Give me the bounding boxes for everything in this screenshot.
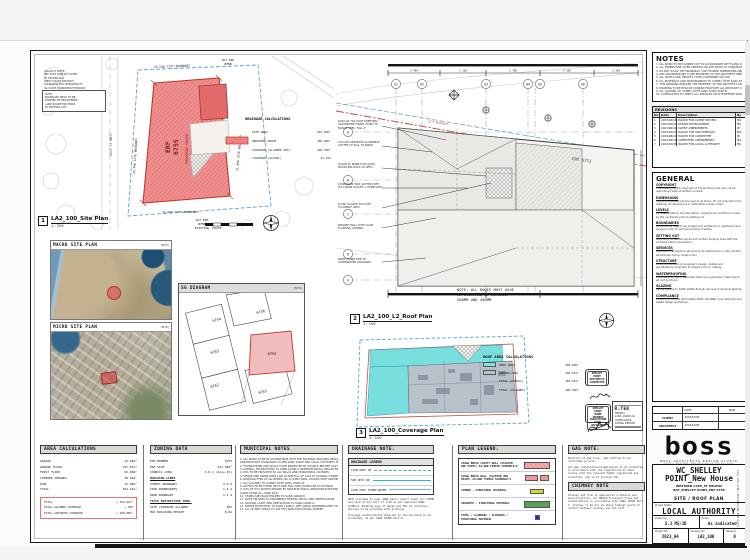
project-title: POINT_New House — [654, 475, 744, 483]
svg-text:A: A — [347, 130, 349, 134]
brick-cavity-swatch — [524, 462, 550, 469]
view-scale: 1 : 200 — [51, 224, 108, 228]
pipe-line-sample — [389, 489, 431, 490]
general-paras: COPYRIGHTThis drawing is the copyright o… — [656, 183, 742, 304]
text-line: 14. ALL OF WET AREAS TO 150 FFLS NON-STR… — [240, 508, 338, 511]
view-number: 3 — [356, 428, 366, 438]
erf-label: ERF — [164, 141, 172, 153]
view-number: 1 — [38, 216, 48, 226]
drainage-note: DRAINAGE NOTE: DRAINAGE LEGEND 110Ø UPVC… — [348, 445, 434, 521]
roof-area-swatch — [483, 362, 496, 367]
view-scale: 1 : 100 — [369, 436, 444, 440]
text-line: GUTTER TO FALL TO RWDP — [338, 144, 382, 147]
drainage-legend: DRAINAGE LEGEND 110Ø UPVC SP 50Ø UPVC WP… — [348, 458, 434, 495]
paragraph: COMPLIANCEAll work to comply with SANS 1… — [656, 294, 742, 304]
macro-aerial-photo — [51, 250, 171, 319]
site-marker — [107, 286, 121, 300]
area-calc-totals: TOTAL+ 394.61m²TOTAL ALLOWED COVERAGE+ 5… — [40, 497, 137, 519]
micro-aerial-photo — [51, 332, 171, 419]
adjacent-erf-top: ADJ ERF6756 — [222, 58, 235, 66]
table-divider — [452, 445, 453, 540]
brick-swatch — [540, 475, 549, 481]
zoning-data-table: ZONING DATA ERF NUMBER6755ERF SIZE641.00… — [150, 445, 232, 516]
general-title: GENERAL — [656, 175, 742, 183]
gas-para: Position of gas line — gas bottles to be… — [568, 457, 645, 464]
erf-sub-label: PROPOSED HOUSE — [185, 134, 189, 164]
signature — [586, 419, 612, 435]
roof-area-calculations: ROOF AREA CALCULATIONS ROOF AREA258.00m²… — [483, 354, 579, 396]
drainage-header: DRAINAGE NOTE: — [348, 445, 434, 454]
gas-para: All gas installations/appliances to be i… — [568, 466, 645, 479]
micro-title: MICRO SITE PLAN — [53, 325, 97, 330]
table-divider — [143, 445, 144, 540]
paragraph: STRUCTUREAll structural work to engineer… — [656, 259, 742, 269]
svg-text:5 780: 5 780 — [509, 69, 517, 73]
table-row: TOTAL ACHIEVED COVERAGE+ 258.00m² — [44, 511, 133, 516]
sg-diagram-box: SG DIAGRAM(NTS) 6754 6756 6763 6762 6761… — [178, 283, 305, 416]
roof-overhang-note: NOTE: ALL ROOFS MUST HAVEAN OVERHANG OF … — [457, 287, 514, 302]
text-line: TO SETTING OUT. — [45, 106, 104, 109]
svg-text:05: 05 — [538, 82, 542, 86]
view-label-coverage-plan: 3 LA2_100_Coverage Plan 1 : 100 — [356, 428, 444, 440]
erf-number: 6755 — [172, 139, 180, 155]
text-line: MOUNTING RAILS TO SPEC. — [338, 166, 382, 169]
notes-box: NOTES 1. ALL WORK TO BE CARRIED OUT IN A… — [652, 52, 746, 102]
micro-nts: (NTS) — [161, 325, 169, 329]
drawn-scale-row: Drawn by:S.J MS/JB Scale:As indicated — [652, 516, 746, 529]
patio-cutout — [190, 120, 230, 155]
area-calc-header: AREA CALCULATIONS — [40, 445, 137, 454]
project-address: BAY_SHELLEY POINT_ERF 6755 — [673, 488, 725, 492]
concrete-swatch — [524, 501, 550, 508]
drawing-number: LA2_100 — [691, 534, 722, 539]
svg-text:PROPOSED HOUSE: PROPOSED HOUSE — [252, 139, 277, 143]
text-line: RATING REPORT — [615, 422, 641, 425]
paragraph: BOUNDARIESAll boundary pegs to be locate… — [656, 221, 742, 231]
drainage-para: Drainage installations external to the b… — [348, 514, 434, 521]
sg-diagram-drawing: 6754 6756 6763 6762 6761 6755 — [179, 293, 304, 415]
view-number: 2 — [350, 314, 360, 324]
steel-swatch — [535, 515, 540, 520]
municipal-header: MUNICIPAL NOTES — [240, 445, 338, 454]
north-arrow-icon — [598, 312, 615, 329]
boundary-label-top: 16.54m CITY BOUNDARY — [154, 64, 190, 69]
scrollbar-thumb[interactable] — [745, 85, 750, 115]
top-dimensions: 2 4503 120 5 7804 100 2 300 — [410, 69, 620, 73]
micro-site-plan-box: MICRO SITE PLAN(NTS) — [50, 322, 172, 420]
road-label: GOLF ST WEST — [109, 133, 113, 156]
table-row: TOTAL394.61m² — [40, 487, 137, 493]
drawing-sheet-viewer: GOLF ST WEST ERF 6755 PROPOSED HOUSE 16.… — [0, 0, 750, 560]
text-line: TO MANUF. SPEC. — [338, 206, 382, 209]
table-row: 72023/10/05ISSUED FOR LOCAL AUTHORITYMS — [653, 142, 745, 146]
boundary-label-left: 25.49m SITE BOUNDARY — [132, 138, 139, 175]
svg-text:320.50m²: 320.50m² — [317, 148, 331, 152]
notes-lines: 1. ALL WORK TO BE CARRIED OUT IN ACCORDA… — [656, 63, 742, 97]
macro-site-plan-box: MACRO SITE PLAN(NTS) — [50, 240, 172, 320]
sheet-name: SITE / ROOF PLAN — [654, 496, 744, 501]
view-name: LA2_100_Coverage Plan — [369, 428, 444, 436]
roof-callout: CONCEALED BOX GUTTER WITHFULL-BORE OUTLE… — [338, 183, 382, 190]
view-label-roof-plan: 2 LA2_100_L2_Roof Plan 1 : 100 — [350, 314, 432, 326]
table-row: CLIENT2023/10/05 — [653, 414, 745, 422]
view-name: LA2_100_Site Plan — [51, 216, 108, 224]
chimney-para: Chimney and flue to specialist's details… — [568, 494, 645, 511]
gas-chimney-notes: GAS NOTE: Position of gas line — gas bot… — [568, 445, 645, 510]
sg-title: SG DIAGRAM — [181, 286, 210, 291]
view-scale: 1 : 100 — [363, 322, 432, 326]
text-line: 10. CONTRACTOR TO VERIFY ALL SERVICES ON… — [656, 93, 742, 96]
zoning-header: ZONING DATA — [150, 445, 232, 454]
signoff-table: DATESIGNCLIENT2023/10/05ARCHITECT2023/10… — [652, 406, 746, 430]
project-box: WC_SHELLEY POINT_New House WESTERN CAPE_… — [652, 464, 746, 503]
roof-area-title: ROOF AREA CALCULATIONS — [483, 354, 579, 359]
site-boxed-note: NOTE:BOUNDARY PEGS TO BEVERIFIED BY REGI… — [42, 90, 106, 112]
table-divider — [562, 445, 563, 540]
general-box: GENERAL COPYRIGHTThis drawing is the cop… — [652, 172, 746, 402]
svg-text:01: 01 — [394, 82, 398, 86]
area-calculations-table: AREA CALCULATIONS GARAGE44.66m²GROUND FL… — [40, 445, 137, 519]
sg-nts: (NTS) — [294, 286, 302, 290]
north-arrow-icon — [262, 214, 280, 232]
drainage-para: UPVC drainage to bear SABS mark; invert … — [348, 498, 434, 511]
svg-text:3 120: 3 120 — [459, 69, 467, 73]
revisions-box: REVISIONS No.Date DescriptionBy 12023/04… — [652, 106, 746, 168]
svg-text:41.07%: 41.07% — [321, 156, 332, 160]
macro-nts: (NTS) — [161, 243, 169, 247]
svg-text:395.00m²: 395.00m² — [317, 139, 331, 143]
roof-area-left — [367, 366, 409, 416]
pipe-line-sample — [374, 470, 431, 471]
roof-callout: SOLAR PV PANELS ON ALUM.MOUNTING RAILS T… — [338, 163, 382, 170]
paragraph: LEVELSAll levels relate to the site datu… — [656, 208, 742, 218]
chimney-header: CHIMNEY NOTE — [568, 482, 645, 491]
drawn-by: S.J MS/JB — [655, 521, 697, 526]
area-calc-rows: GARAGE44.66m²GROUND FLOOR197.87m²FIRST F… — [40, 459, 137, 493]
energy-rating-card: R:TEK ENERGYSANS 10400-XACOMPLIANCERATIN… — [612, 401, 643, 431]
text-line: STORMWATER SOAKAWAY — [338, 261, 382, 264]
paragraph: GLAZINGSafety glazing to SANS 10400-N at… — [656, 284, 742, 291]
paragraph: SERVICESPositions of all existing servic… — [656, 246, 742, 256]
title-block: NOTES 1. ALL WORK TO BE CARRIED OUT IN A… — [652, 44, 746, 544]
svg-text:03: 03 — [484, 82, 488, 86]
svg-text:4 100: 4 100 — [563, 69, 571, 73]
brand-block: boss BOSS ARCHITECTS DESIGN STUDIO STUDI… — [652, 436, 746, 465]
ground-area-swatch — [483, 370, 496, 375]
paragraph: DIMENSIONSFigured dimensions to be used … — [656, 196, 742, 206]
macro-title: MACRO SITE PLAN — [53, 243, 97, 248]
table-divider — [235, 445, 236, 540]
site-marker — [100, 371, 118, 385]
top-dim-bar — [388, 64, 638, 66]
text-line: FLASHING CAPPING — [338, 227, 382, 230]
scrollbar-track[interactable] — [745, 42, 750, 546]
roof-callout: KLIP-LOK 700 ROOF SHEETING,COLORBOND FIN… — [338, 120, 382, 130]
text-line: MANUF. SPEC. FALL 2° — [338, 127, 382, 130]
svg-text:04: 04 — [526, 82, 530, 86]
status-value: LOCAL AUTHORITY — [655, 507, 743, 516]
municipal-lines: 1. ALL WORK TO BE IN ACCORDANCE WITH THE… — [240, 458, 338, 512]
table-divider — [342, 445, 343, 540]
brick-swatch — [525, 475, 538, 481]
manhole-symbols — [483, 107, 595, 127]
text-line: FULL-BORE OUTLET + OVERFLOW — [338, 186, 382, 189]
committee-stamp: SHELLEY POINTAESTHETICSCOMMITTEE — [585, 369, 609, 386]
text-line: COMMITTEE — [589, 382, 605, 385]
svg-text:02: 02 — [420, 82, 424, 86]
svg-text:E: E — [347, 278, 349, 282]
gas-header: GAS NOTE: — [568, 445, 645, 454]
table-row: DATESIGN — [653, 407, 745, 414]
roof-callout: PARAPET WALL WITH ALUM.FLASHING CAPPING — [338, 224, 382, 231]
drainage-legend-header: DRAINAGE LEGEND — [349, 459, 433, 466]
plan-legend-header: PLAN LEGEND: — [458, 445, 556, 454]
table-row: MAX BUILDING HEIGHT8.0m — [150, 510, 232, 516]
svg-text:SITE AREA: SITE AREA — [252, 130, 268, 134]
svg-text:641.00m²: 641.00m² — [317, 130, 331, 134]
page-bottom-edge — [95, 544, 747, 548]
view-label-site-plan: 1 LA2_100_Site Plan 1 : 200 — [38, 216, 108, 228]
paragraph: WATERPROOFINGAll waterproofing to specia… — [656, 272, 742, 282]
zoning-rows: ERF NUMBER6755ERF SIZE641.00m²COUNCIL CO… — [150, 459, 232, 516]
svg-text:2 450: 2 450 — [410, 69, 418, 73]
svg-text:6755: 6755 — [268, 352, 277, 356]
roof-plan-drawing: 2 4503 120 5 7804 100 2 300 0102 0304 05… — [336, 48, 646, 310]
pipe-line-sample — [373, 480, 431, 481]
svg-text:DRAINAGE CALCULATIONS: DRAINAGE CALCULATIONS — [245, 117, 290, 121]
paragraph: COPYRIGHTThis drawing is the copyright o… — [656, 183, 742, 193]
svg-text:B: B — [347, 178, 349, 182]
table-row: ARCHITECT2023/10/05 — [653, 422, 745, 429]
timber-swatch — [530, 489, 544, 494]
svg-text:2 300: 2 300 — [612, 69, 620, 73]
municipal-notes: MUNICIPAL NOTES 1. ALL WORK TO BE IN ACC… — [240, 445, 338, 512]
svg-text:06: 06 — [581, 82, 585, 86]
svg-text:6756: 6756 — [224, 62, 231, 66]
svg-text:D: D — [347, 252, 349, 256]
roof-callout: FLUSH GLAZED SKYLIGHTTO MANUF. SPEC. — [338, 203, 382, 210]
boundary-text: SITE BOUNDARY — [428, 119, 449, 126]
site-locality-note: LOCALITY NOTE:ERF 6755 SHELLEY POINTST H… — [44, 70, 102, 90]
benchmark-symbol — [449, 90, 459, 100]
svg-text:COVERAGE (ACTUAL): COVERAGE (ACTUAL) — [252, 156, 282, 160]
roof-callout: RWDP DOWN PIPE TOSTORMWATER SOAKAWAY — [338, 258, 382, 265]
garage-block — [199, 84, 228, 120]
skylight — [486, 168, 512, 198]
notes-title: NOTES — [656, 55, 742, 63]
roof-body — [398, 128, 634, 286]
roof-callout: 125x100 SEAMLESS ALUMINIUMGUTTER TO FALL… — [338, 141, 382, 148]
drainage-calculations-legend: DRAINAGE CALCULATIONS SITE AREA 641.00m²… — [226, 117, 331, 160]
revisions-rows: 12023/04/18ISSUED FOR CLIENT REVIEWMS220… — [653, 118, 745, 158]
view-name: LA2_100_L2_Roof Plan — [363, 314, 432, 322]
paragraph: SETTING OUTContractor to set out works a… — [656, 234, 742, 244]
boss-logo: boss — [652, 437, 746, 458]
svg-text:C: C — [347, 212, 349, 216]
svg-text:COVERAGE (ALLOWED 50%): COVERAGE (ALLOWED 50%) — [252, 148, 291, 152]
plan-legend: PLAN LEGEND: 230mm BRICK CAVITY WALL (PL… — [458, 445, 556, 525]
text-line: 200MM AND 450MM — [457, 297, 514, 302]
number-row: Project No.2023_04 Drawing No.LA2_100 Re… — [652, 529, 746, 544]
project-number: 2023_04 — [655, 534, 686, 539]
scale-bar — [205, 221, 253, 229]
revision-number: 0 — [726, 534, 743, 539]
sheet-side-text: LA2_100_SITE / ROOF PLAN_ERF 6755 — [736, 470, 740, 527]
boundary-label-bottom: 16.66m CITY BOUNDARY — [162, 210, 198, 214]
legend-red-swatch — [226, 137, 248, 144]
status-box: Project Status LOCAL AUTHORITY — [652, 503, 746, 516]
signature — [589, 390, 611, 402]
